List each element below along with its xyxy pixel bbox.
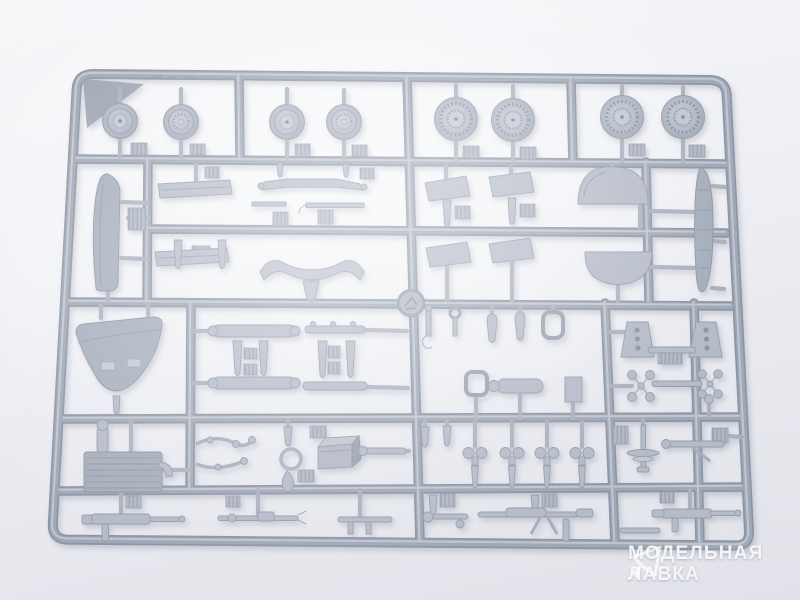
sprue-photo xyxy=(0,0,800,600)
haze-overlay-2 xyxy=(0,0,800,600)
photo-stage: МОДЕЛЬНАЯ ЛАВКА xyxy=(0,0,800,600)
